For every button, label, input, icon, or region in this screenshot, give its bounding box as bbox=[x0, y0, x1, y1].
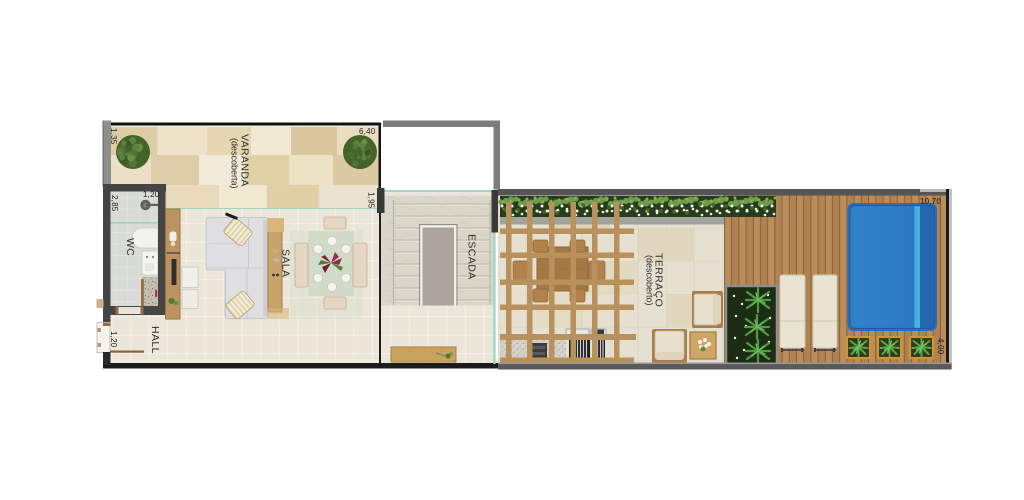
svg-text:6,40: 6,40 bbox=[359, 127, 376, 136]
svg-text:(descoberto): (descoberto) bbox=[645, 255, 655, 306]
svg-text:SALA: SALA bbox=[280, 249, 292, 277]
svg-text:1,95: 1,95 bbox=[367, 192, 376, 209]
svg-text:1,20: 1,20 bbox=[109, 331, 118, 348]
svg-text:10,70: 10,70 bbox=[920, 197, 941, 206]
svg-text:1,20: 1,20 bbox=[143, 190, 160, 199]
svg-text:2,85: 2,85 bbox=[110, 195, 119, 212]
svg-text:1,35: 1,35 bbox=[109, 128, 118, 145]
svg-text:HALL: HALL bbox=[149, 326, 161, 354]
svg-text:WC: WC bbox=[124, 238, 136, 256]
svg-text:4,00: 4,00 bbox=[936, 338, 945, 355]
svg-text:(descoberta): (descoberta) bbox=[230, 138, 240, 189]
svg-text:ESCADA: ESCADA bbox=[466, 234, 478, 280]
